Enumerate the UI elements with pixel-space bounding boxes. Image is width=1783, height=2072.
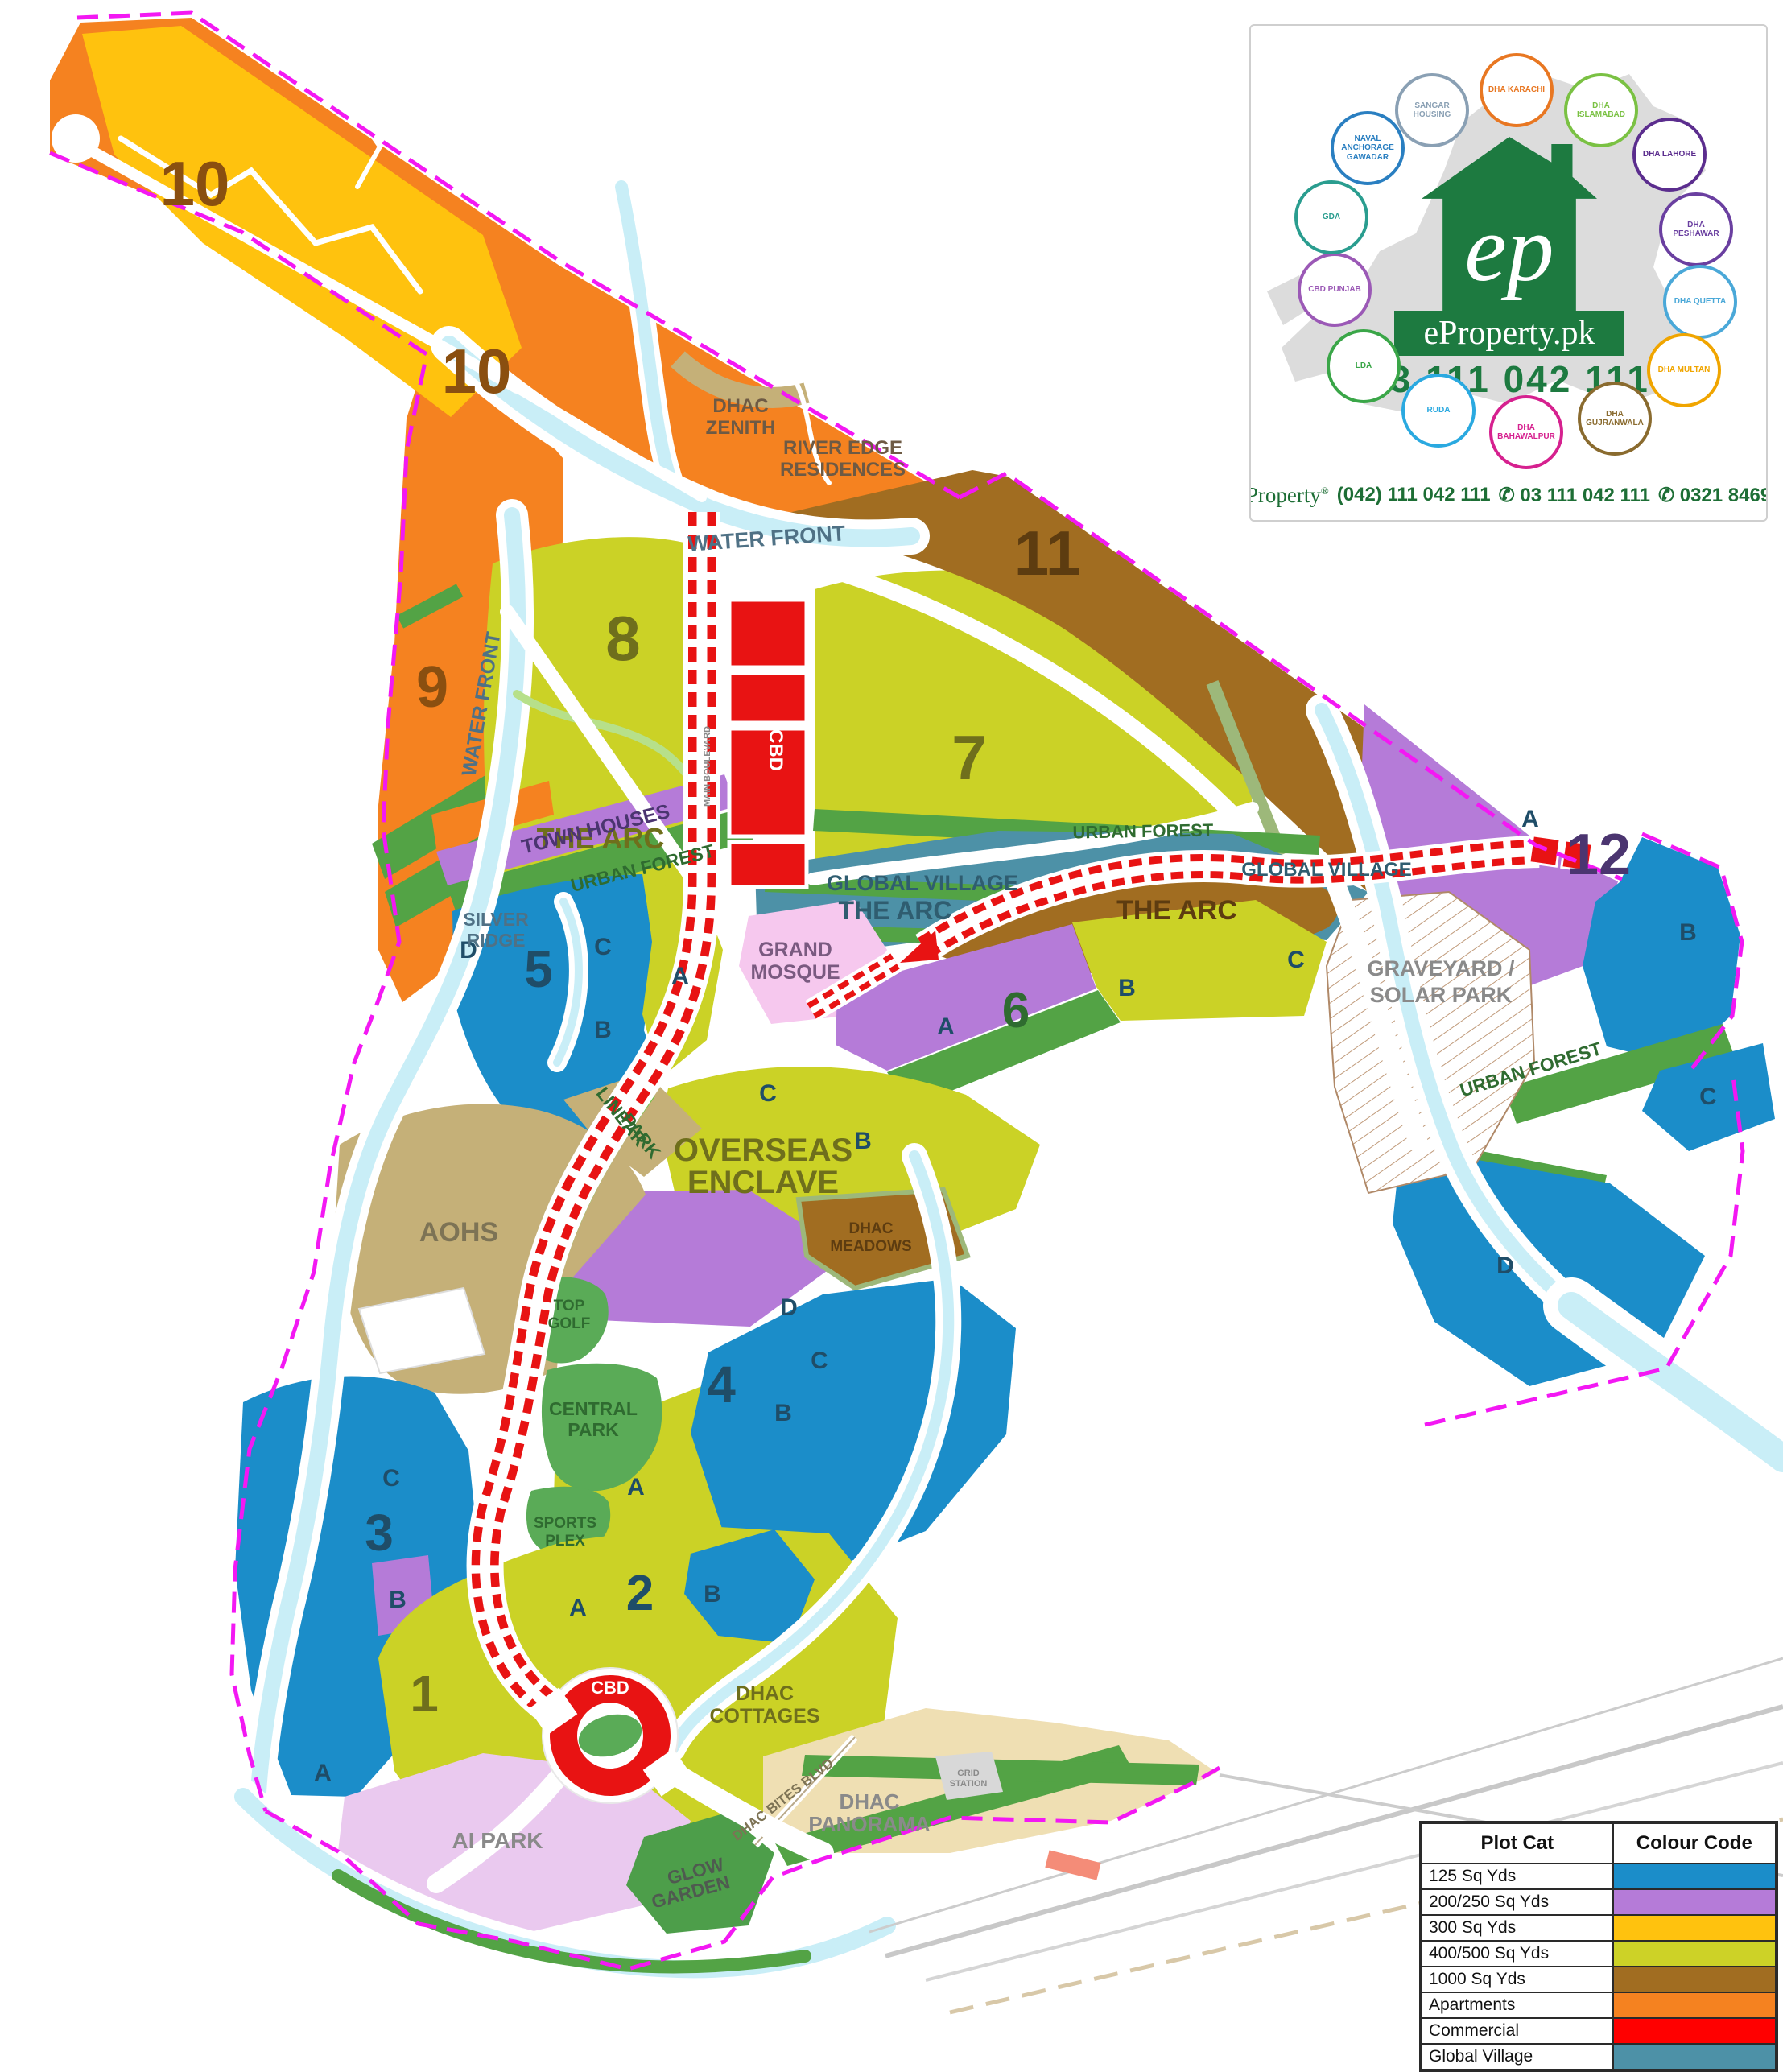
map-label-zone-overseas-c: C [759,1080,777,1107]
map-label-sector-7: 7 [951,722,986,793]
partner-logo-label: DHA GUJRANWALA [1586,410,1644,428]
map-label-zone-12-c: C [1699,1083,1717,1110]
map-label-sector-5: 5 [524,940,553,998]
map-label-grid-station-1: GRID [957,1769,980,1778]
map-label-zone-4-d: D [780,1294,798,1321]
map-label-zone-overseas-b: B [854,1128,872,1154]
footer-brand: eProperty® [1249,483,1329,508]
map-label-dhac-zenith-1: DHAC [712,395,768,417]
map-label-sector-8: 8 [605,603,640,674]
map-label-zone-12-d: D [1496,1253,1514,1279]
partner-logo-label: DHA KARACHI [1488,85,1545,95]
map-label-central-park-2: PARK [568,1419,619,1440]
map-label-grid-station-2: STATION [950,1779,988,1789]
map-label-sector-10-yellow: 10 [160,148,230,219]
partner-logo-dha-quetta: DHA QUETTA [1663,265,1737,339]
map-label-silver-ridge-2: RIDGE [467,930,526,951]
partner-logo-label: CBD PUNJAB [1308,285,1361,295]
legend-row: Apartments [1422,1992,1776,2018]
map-label-ai-park: AI PARK [452,1828,543,1853]
legend-swatch [1613,1864,1776,1889]
map-label-dhac-cottages-1: DHAC [736,1682,794,1705]
map-label-dhac-meadows-2: MEADOWS [830,1238,911,1255]
footer-phone-c: ✆ 0321 8469951 [1658,484,1768,507]
map-label-global-village-1: GLOBAL VILLAGE [827,871,1018,895]
partner-logo-label: DHA PESHAWAR [1667,221,1725,239]
partner-logo-label: DHA QUETTA [1674,297,1726,307]
partner-logo-label: DHA BAHAWALPUR [1497,423,1555,442]
map-label-grand-mosque-1: GRAND [758,939,832,961]
legend-label: 300 Sq Yds [1422,1915,1613,1941]
legend-row: 125 Sq Yds [1422,1864,1776,1889]
map-label-sports-plex-1: SPORTS [534,1515,596,1532]
map-label-graveyard-2: SOLAR PARK [1370,983,1513,1007]
map-label-overseas-1: OVERSEAS [674,1133,852,1168]
map-label-graveyard-1: GRAVEYARD / [1367,956,1515,980]
legend-row: Commercial [1422,2018,1776,2044]
partner-logo-label: DHA MULTAN [1658,365,1711,375]
map-label-dhac-panorama-2: PANORAMA [808,1812,930,1836]
eproperty-footer-contacts: ⌂eProperty® (042) 111 042 111 ✆ 03 111 0… [1265,481,1752,509]
map-label-global-village-2: GLOBAL VILLAGE [1241,859,1412,881]
legend-swatch [1613,2044,1776,2070]
legend-row: 200/250 Sq Yds [1422,1889,1776,1915]
partner-logo-label: NAVAL ANCHORAGE GAWADAR [1339,134,1397,163]
partner-logo-label: RUDA [1427,406,1451,415]
map-label-sector-12: 12 [1566,823,1631,887]
ep-monogram: ep [1464,201,1554,319]
map-label-silver-ridge-1: SILVER [463,909,529,930]
partner-logo-sangar-housing: SANGAR HOUSING [1395,73,1469,147]
partner-logo-dha-karachi: DHA KARACHI [1480,53,1554,127]
legend-label: Commercial [1422,2018,1613,2044]
partner-logo-dha-islamabad: DHA ISLAMABAD [1564,73,1638,147]
map-label-sector-4: 4 [707,1356,736,1414]
map-label-cbd-roundabout: CBD [591,1678,629,1698]
map-label-dhac-meadows-1: DHAC [849,1220,894,1237]
map-label-cbd-strip: CBD [765,729,786,771]
legend-header-colour-code: Colour Code [1613,1823,1776,1864]
map-label-zone-4-c: C [811,1348,828,1374]
map-label-sector-1: 1 [410,1665,439,1723]
partner-logo-gda: GDA [1294,180,1368,254]
map-label-aohs: AOHS [419,1217,498,1248]
eproperty-logo-panel: DHA KARACHIDHA ISLAMABADDHA LAHOREDHA PE… [1249,24,1768,522]
map-label-top-golf-2: GOLF [548,1315,591,1332]
map-label-sector-3: 3 [365,1504,394,1562]
map-label-zone-3-c: C [382,1465,400,1492]
map-label-zone-3-a: A [314,1760,332,1786]
partner-logo-dha-bahawalpur: DHA BAHAWALPUR [1489,395,1563,469]
legend-label: 400/500 Sq Yds [1422,1941,1613,1967]
map-label-top-golf-1: TOP [554,1298,585,1315]
map-label-zone-5-b: B [594,1017,612,1043]
legend-swatch [1613,1889,1776,1915]
map-label-the-arc-brown: THE ARC [1116,895,1237,926]
legend-label: 200/250 Sq Yds [1422,1889,1613,1915]
registered-icon: ® [1321,485,1329,497]
map-label-zone-2-a: A [569,1595,587,1621]
partner-logo-lda: LDA [1327,329,1401,403]
map-label-river-edge-2: RESIDENCES [780,459,906,481]
map-label-zone-4-a: A [627,1474,645,1500]
map-label-zone-5-a: A [671,963,689,989]
legend-row: 400/500 Sq Yds [1422,1941,1776,1967]
footer-phone-b: ✆ 03 111 042 111 [1499,484,1650,507]
legend-header-plot-cat: Plot Cat [1422,1823,1613,1864]
legend-swatch [1613,1941,1776,1967]
map-label-urban-forest-center: URBAN FOREST [1072,819,1214,842]
map-label-dhac-cottages-2: COTTAGES [709,1705,819,1727]
map-label-river-edge-1: RIVER EDGE [783,437,902,459]
legend-swatch [1613,2018,1776,2044]
map-label-overseas-2: ENCLAVE [687,1165,839,1200]
map-label-central-park-1: CENTRAL [549,1398,638,1419]
map-label-sports-plex-2: PLEX [545,1533,585,1550]
legend-label: 1000 Sq Yds [1422,1967,1613,1992]
partner-logo-dha-peshawar: DHA PESHAWAR [1659,192,1733,266]
map-label-sector-9: 9 [416,655,448,720]
legend-row: 300 Sq Yds [1422,1915,1776,1941]
map-label-zone-2-b: B [704,1581,721,1608]
legend-label: Global Village [1422,2044,1613,2070]
map-label-zone-3-b: B [389,1587,407,1613]
partner-logo-ruda: RUDA [1401,374,1476,448]
map-label-main-boulevard: MAIN BOULEVARD [703,726,712,807]
map-label-zone-4-b: B [774,1400,792,1426]
map-label-sector-11: 11 [1014,518,1080,588]
partner-logo-cbd-punjab: CBD PUNJAB [1298,253,1372,327]
map-label-the-arc-teal: THE ARC [838,896,951,925]
map-label-sector-2: 2 [626,1566,654,1621]
legend-label: Apartments [1422,1992,1613,2018]
legend-swatch [1613,1915,1776,1941]
partner-logo-naval-anchorage-gawadar: NAVAL ANCHORAGE GAWADAR [1331,111,1405,185]
map-label-zone-12-a: A [1521,806,1539,832]
map-label-sector-6: 6 [1002,983,1030,1038]
partner-logo-dha-multan: DHA MULTAN [1647,333,1721,407]
partner-logo-label: SANGAR HOUSING [1403,101,1461,120]
partner-logo-dha-gujranwala: DHA GUJRANWALA [1578,382,1652,456]
partner-logo-label: DHA ISLAMABAD [1572,101,1630,120]
legend-swatch [1613,1967,1776,1992]
map-label-grand-mosque-2: MOSQUE [750,961,840,984]
map-label-zone-12-b: B [1679,919,1697,946]
map-label-dhac-panorama-1: DHAC [839,1789,899,1814]
map-label-sector-10-orange: 10 [442,336,512,407]
legend-row: 1000 Sq Yds [1422,1967,1776,1992]
legend-table: Plot Cat Colour Code 125 Sq Yds200/250 S… [1421,1822,1777,2070]
legend: Plot Cat Colour Code 125 Sq Yds200/250 S… [1419,1821,1778,2072]
eproperty-brand: eProperty.pk [1394,311,1624,356]
map-label-zone-6-a: A [937,1013,955,1040]
map-label-zone-5-c: C [594,934,612,960]
partner-logo-label: LDA [1356,361,1372,371]
legend-label: 125 Sq Yds [1422,1864,1613,1889]
legend-swatch [1613,1992,1776,2018]
footer-phone-a: (042) 111 042 111 [1337,484,1491,506]
legend-row: Global Village [1422,2044,1776,2070]
partner-logo-label: GDA [1323,213,1340,222]
partner-logo-label: DHA LAHORE [1643,150,1696,159]
map-label-dhac-zenith-2: ZENITH [706,417,776,439]
map-label-zone-6-c: C [1287,947,1305,973]
map-label-zone-6-b: B [1118,975,1136,1001]
partner-logo-dha-lahore: DHA LAHORE [1632,118,1707,192]
